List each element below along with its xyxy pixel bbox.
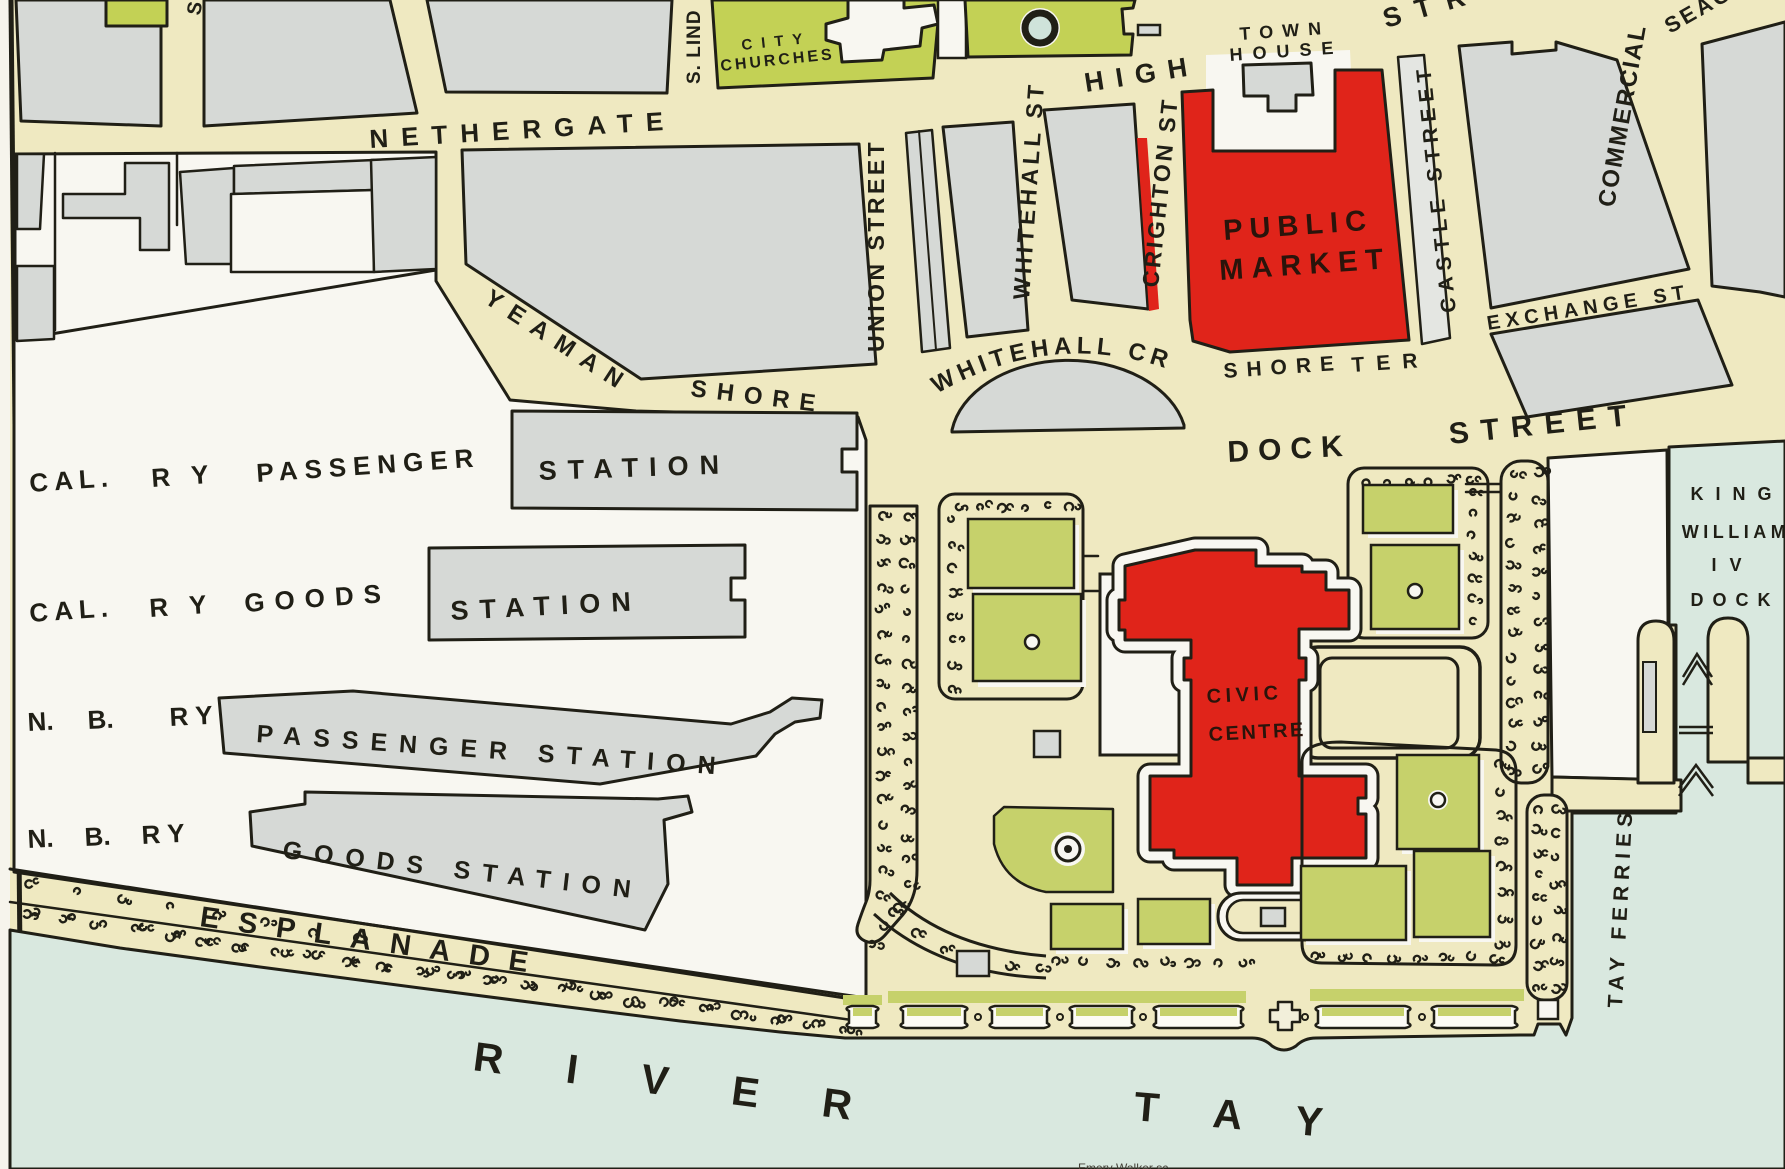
svg-text:RY: RY	[148, 588, 229, 623]
svg-text:KING: KING	[1691, 484, 1784, 504]
svg-text:N.: N.	[27, 706, 55, 737]
svg-text:RY: RY	[150, 458, 231, 493]
svg-text:B.: B.	[87, 704, 115, 735]
svg-text:UNION STREET: UNION STREET	[863, 139, 889, 352]
svg-text:S. LIND: S. LIND	[684, 9, 705, 84]
svg-text:CIVIC: CIVIC	[1206, 682, 1283, 708]
svg-text:WILLIAM: WILLIAM	[1682, 522, 1785, 542]
svg-text:B.: B.	[84, 821, 112, 852]
svg-text:IV: IV	[1711, 555, 1754, 575]
svg-text:RY: RY	[141, 817, 194, 850]
svg-text:CAL.: CAL.	[28, 592, 115, 628]
svg-text:Emery Walker sc.: Emery Walker sc.	[1078, 1161, 1172, 1169]
svg-text:DOCK: DOCK	[1227, 430, 1353, 469]
svg-text:N.: N.	[27, 823, 55, 854]
svg-text:RY: RY	[169, 699, 222, 732]
svg-text:DOCK: DOCK	[1691, 590, 1780, 610]
svg-text:CAL.: CAL.	[28, 462, 115, 498]
